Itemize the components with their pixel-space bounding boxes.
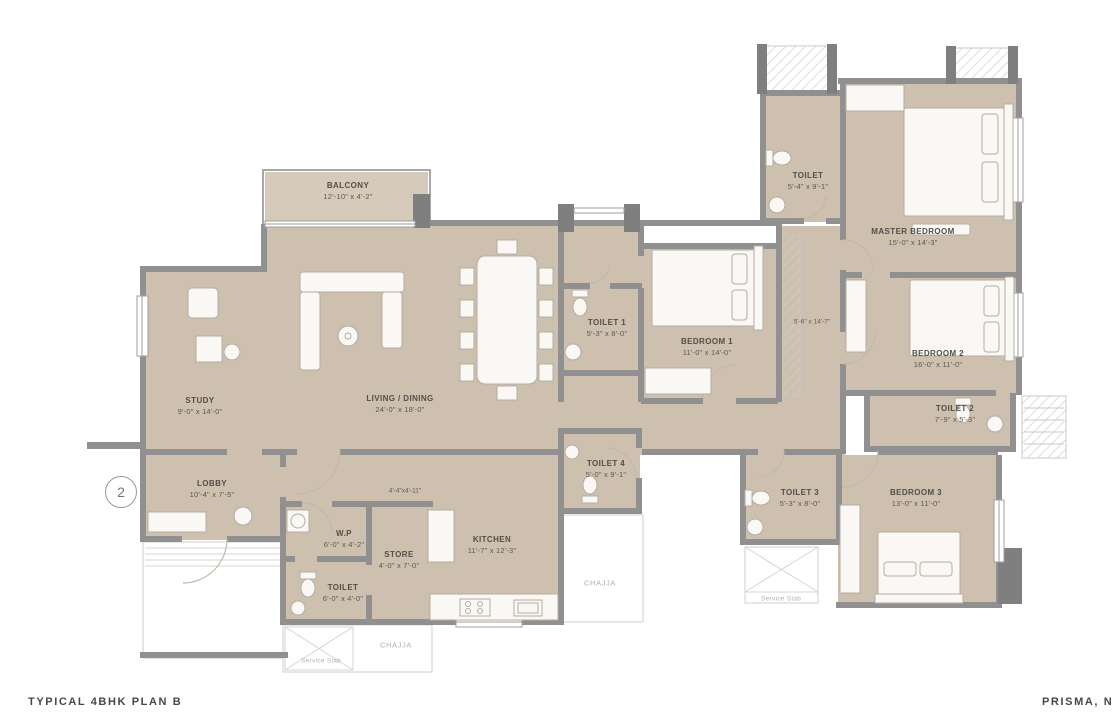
chajja-label-1: CHAJJA [584,579,616,588]
room-label-living-dining: LIVING / DINING 24'-0" x 18'-0" [366,393,433,415]
room-label-master-bedroom: MASTER BEDROOM 15'-0" x 14'-3" [871,226,954,248]
room-label-toilet-1: TOILET 1 5'-3" x 8'-0" [587,317,627,339]
plan-number: 2 [117,484,125,500]
service-slab-label-1: Service Slab [761,596,801,603]
passage-dim-label-1: 5'-6" x 14'-7" [794,319,830,326]
passage-dim-label-2: 4'-4"x4'-11" [389,488,421,495]
room-label-kitchen: KITCHEN 11'-7" x 12'-3" [468,534,517,556]
chajja-label-2: CHAJJA [380,641,412,650]
room-label-toilet-4: TOILET 4 5'-0" x 9'-1" [586,458,626,480]
plan-number-marker: 2 [105,476,137,508]
room-label-wp: W.P 6'-0" x 4'-2" [324,528,364,550]
room-label-study: STUDY 9'-0" x 14'-0" [178,395,223,417]
plan-title: TYPICAL 4BHK PLAN B [28,696,182,708]
room-label-toilet-2: TOILET 2 7'-9" x 5'-3" [935,403,975,425]
room-label-bedroom-2: BEDROOM 2 16'-0" x 11'-0" [912,348,964,370]
room-label-master-toilet: TOILET 5'-4" x 9'-1" [788,170,828,192]
service-slab-label-2: Service Slab [301,658,341,665]
room-label-common-toilet: TOILET 6'-0" x 4'-0" [323,582,363,604]
room-label-store: STORE 4'-0" x 7'-0" [379,549,419,571]
room-label-toilet-3: TOILET 3 5'-3" x 8'-0" [780,487,820,509]
room-label-balcony: BALCONY 12'-10" x 4'-2" [323,180,372,202]
floorplan-page: BALCONY 12'-10" x 4'-2" STUDY 9'-0" x 14… [0,0,1120,726]
room-label-lobby: LOBBY 10'-4" x 7'-5" [190,478,235,500]
room-label-bedroom-1: BEDROOM 1 11'-0" x 14'-0" [681,336,733,358]
project-name: PRISMA, N [1042,696,1113,708]
room-label-bedroom-3: BEDROOM 3 13'-0" x 11'-0" [890,487,942,509]
